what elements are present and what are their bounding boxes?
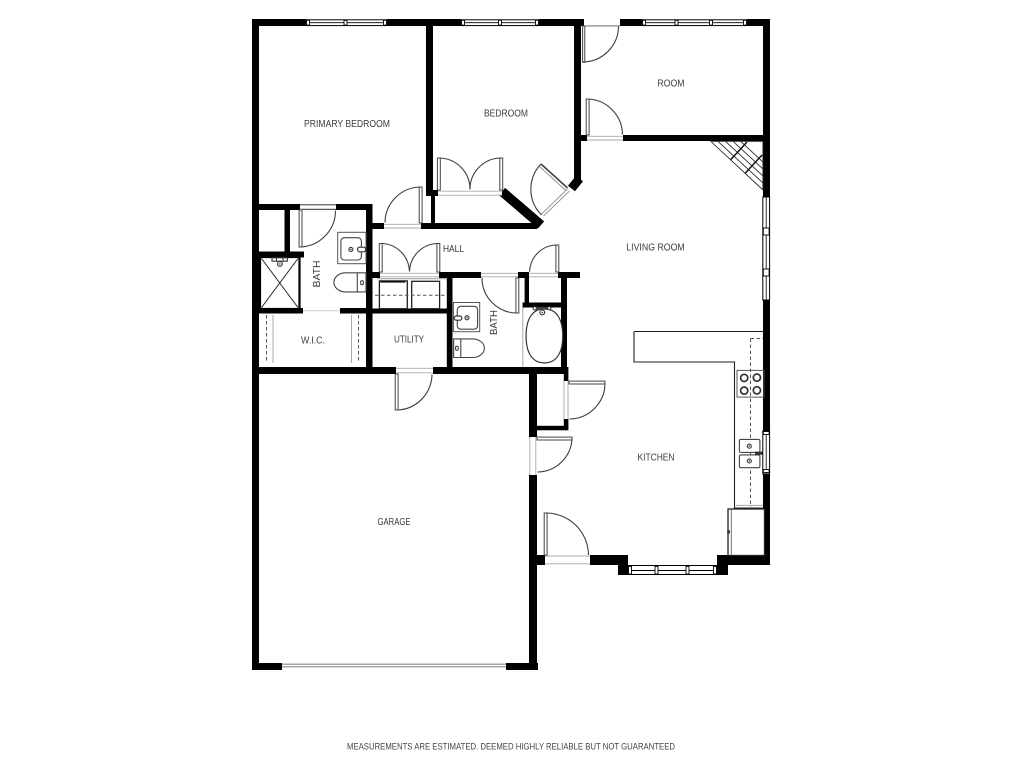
- svg-text:PRIMARY BEDROOM: PRIMARY BEDROOM: [304, 119, 390, 130]
- svg-text:KITCHEN: KITCHEN: [638, 452, 675, 463]
- svg-text:UTILITY: UTILITY: [394, 334, 424, 345]
- svg-text:ROOM: ROOM: [658, 79, 685, 90]
- svg-text:GARAGE: GARAGE: [378, 517, 411, 528]
- svg-text:HALL: HALL: [443, 244, 464, 255]
- svg-text:BEDROOM: BEDROOM: [484, 109, 528, 120]
- svg-text:BATH: BATH: [312, 261, 323, 288]
- svg-text:MEASUREMENTS ARE ESTIMATED. DE: MEASUREMENTS ARE ESTIMATED. DEEMED HIGHL…: [347, 741, 675, 751]
- svg-text:W.I.C.: W.I.C.: [301, 336, 325, 347]
- svg-text:BATH: BATH: [489, 310, 500, 335]
- svg-text:LIVING ROOM: LIVING ROOM: [626, 242, 685, 253]
